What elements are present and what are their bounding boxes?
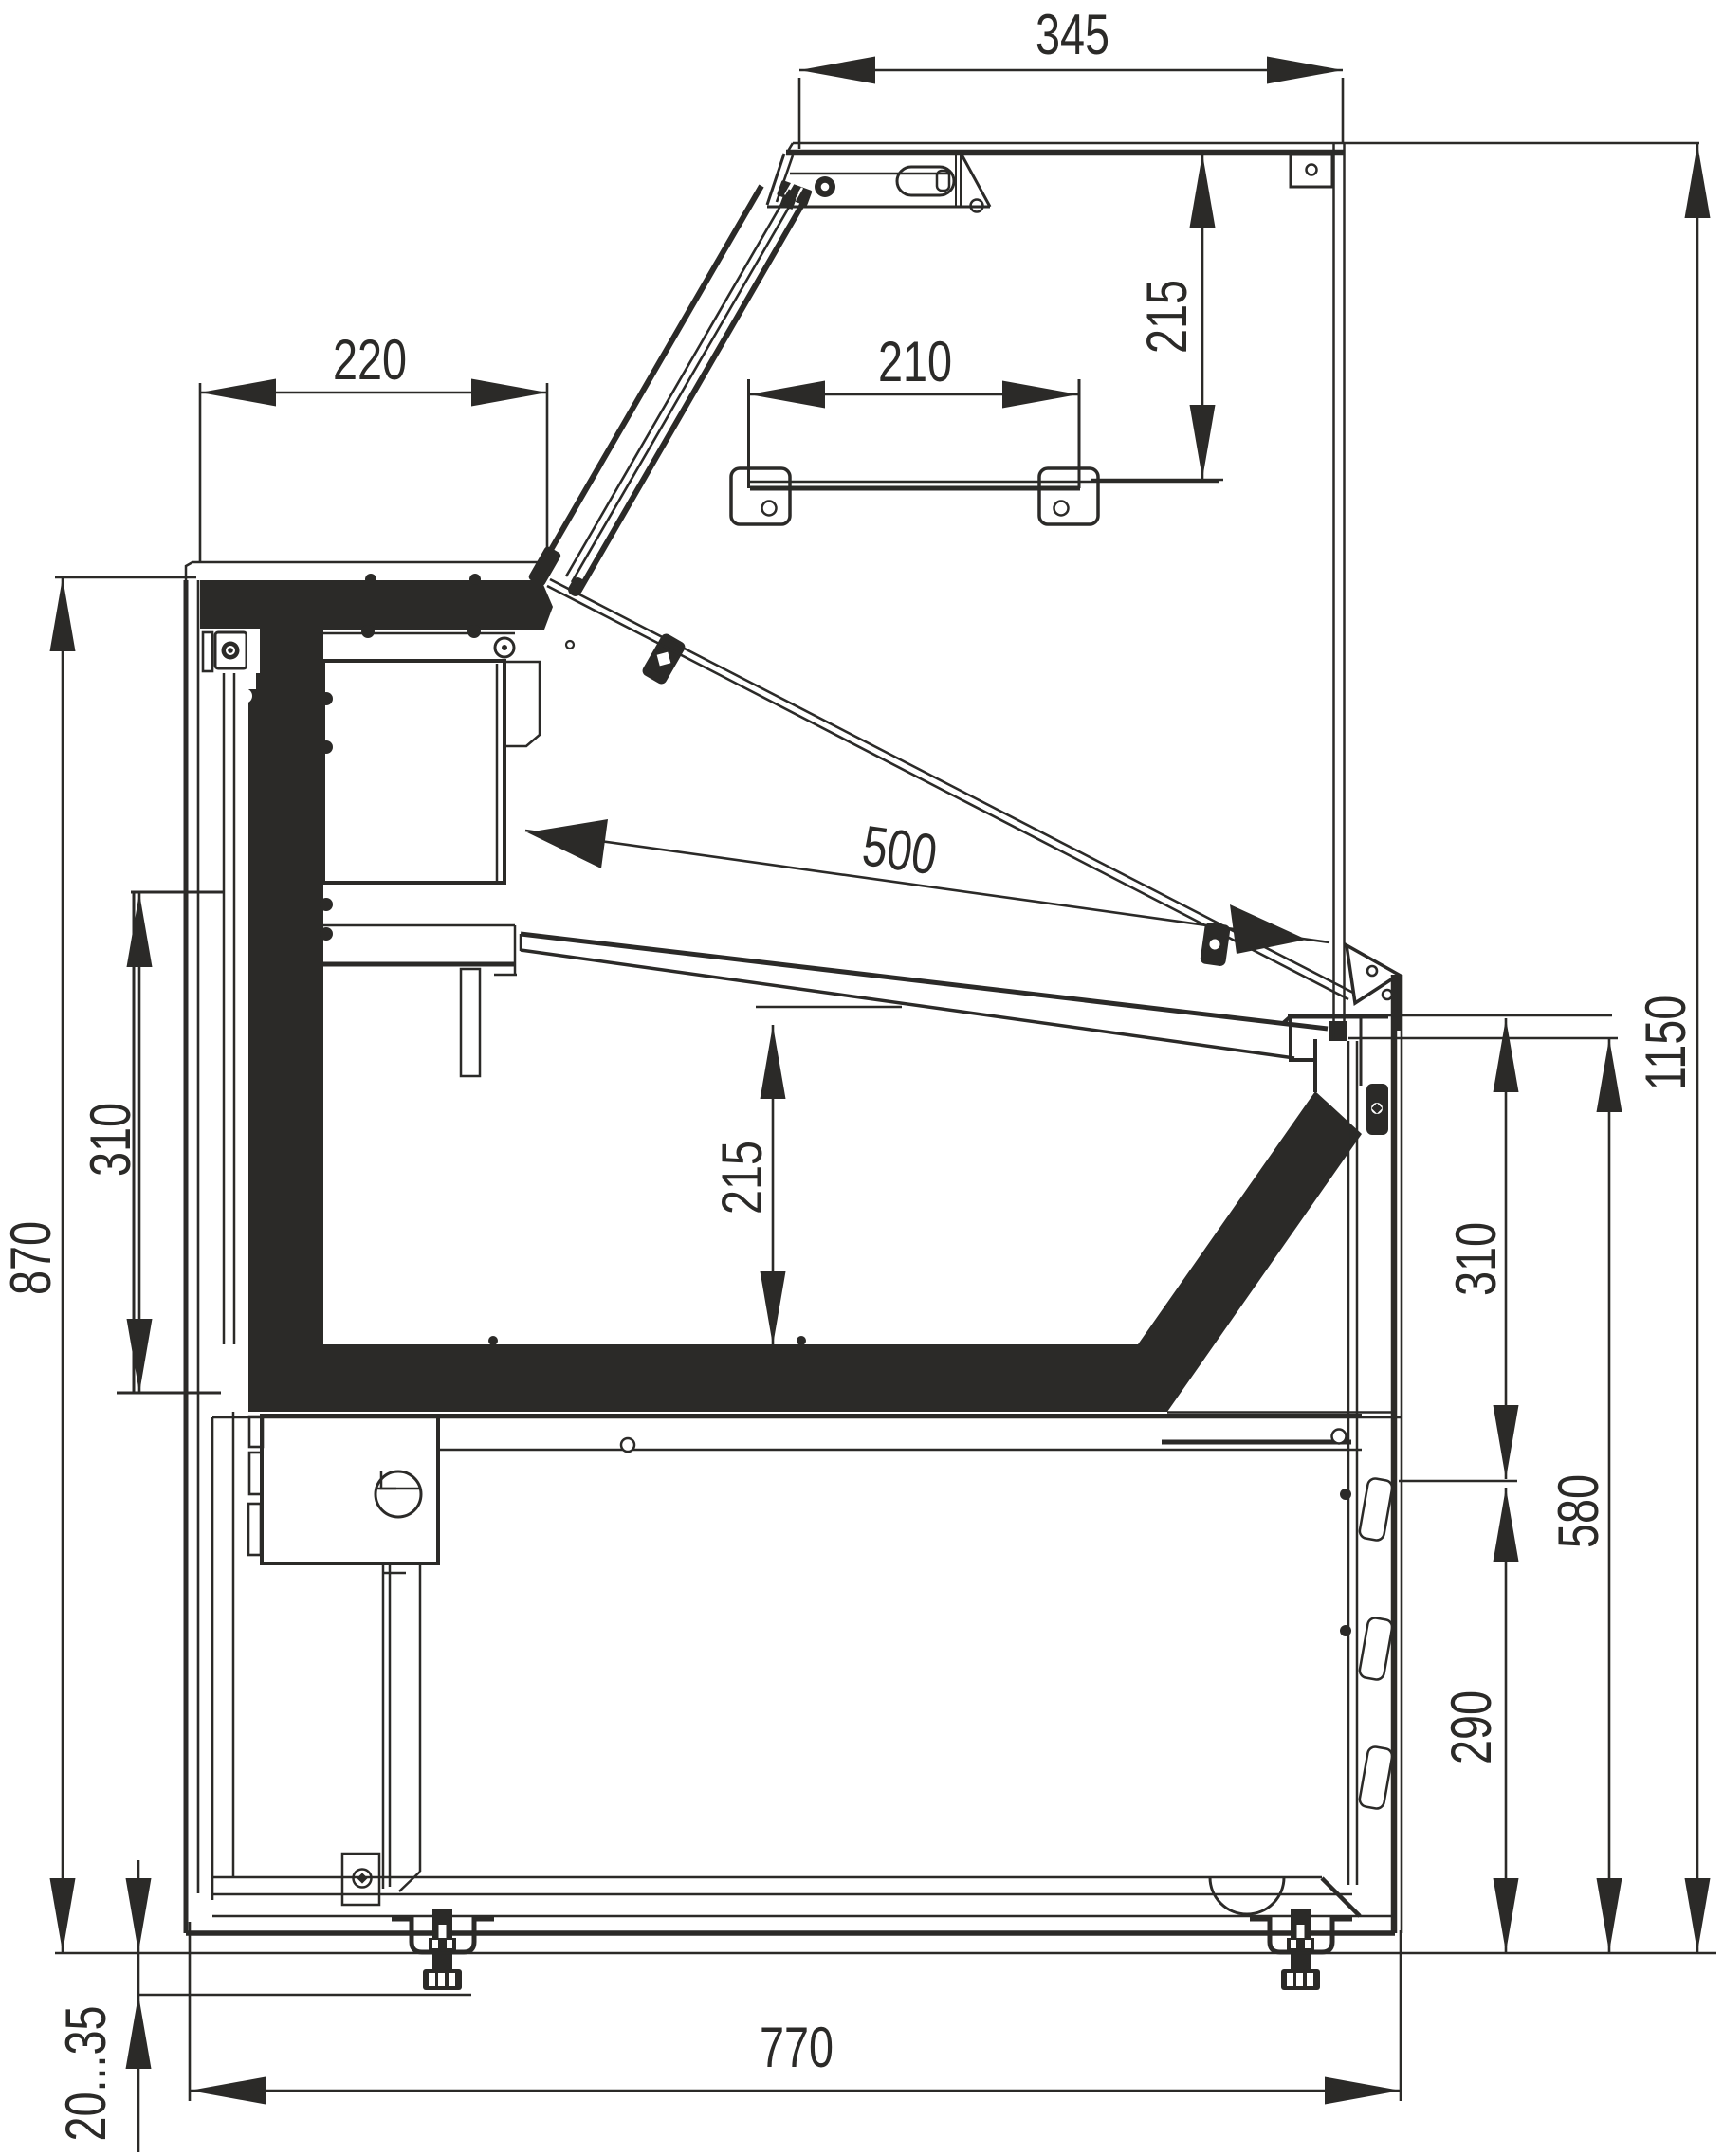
- svg-text:770: 770: [760, 2016, 834, 2079]
- svg-text:310: 310: [1444, 1222, 1508, 1296]
- svg-text:500: 500: [858, 814, 941, 887]
- svg-text:210: 210: [878, 330, 952, 393]
- svg-text:20...35: 20...35: [54, 2005, 118, 2141]
- svg-text:310: 310: [79, 1103, 142, 1177]
- svg-text:870: 870: [0, 1221, 63, 1295]
- svg-text:290: 290: [1439, 1690, 1503, 1764]
- svg-text:215: 215: [710, 1141, 774, 1215]
- svg-text:345: 345: [1036, 3, 1109, 66]
- svg-text:580: 580: [1547, 1474, 1610, 1548]
- svg-text:220: 220: [333, 328, 407, 392]
- svg-text:215: 215: [1135, 280, 1199, 354]
- svg-text:1150: 1150: [1634, 996, 1697, 1091]
